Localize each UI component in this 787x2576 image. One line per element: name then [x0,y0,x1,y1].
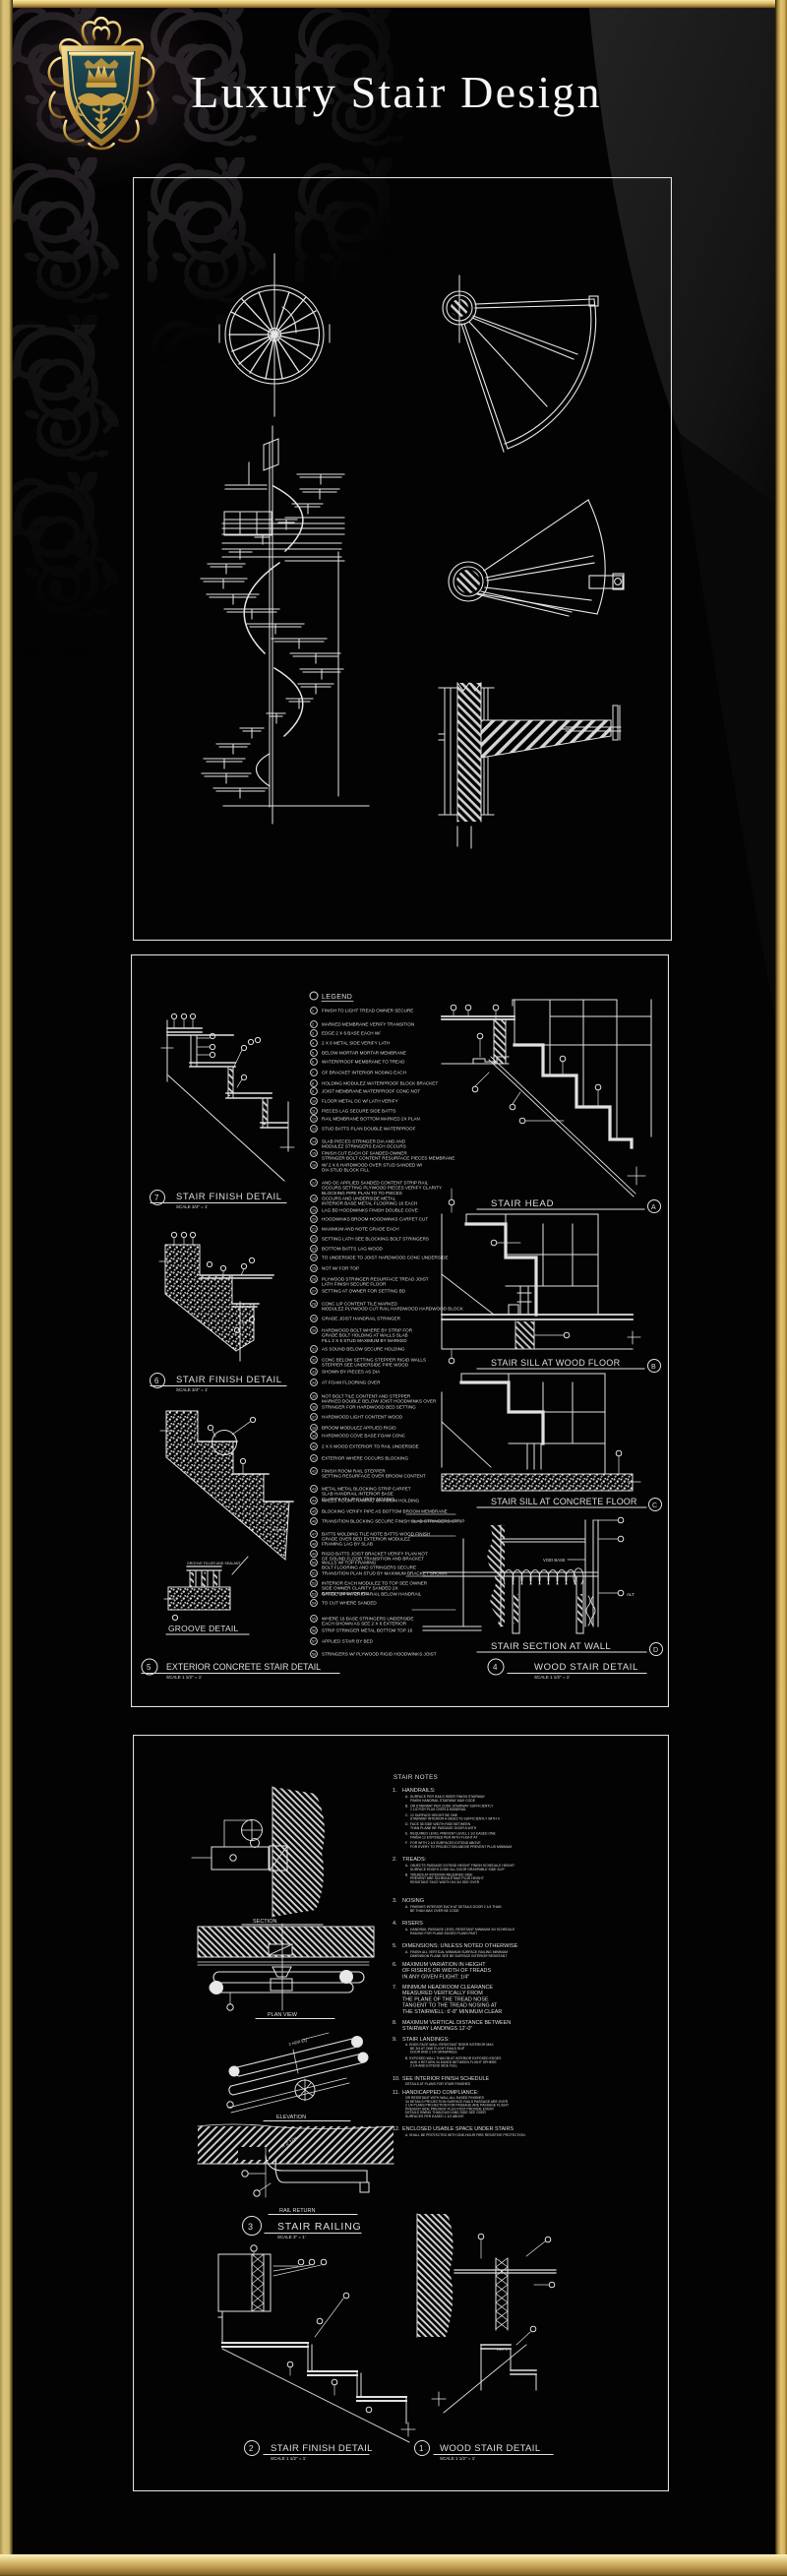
svg-text:5: 5 [312,1052,314,1056]
svg-text:1: 1 [419,2444,424,2453]
svg-text:AND OC APPLIED SANDED CONTENT: AND OC APPLIED SANDED CONTENT STRIP RAIL… [322,1181,442,1196]
svg-text:A.: A. [405,1864,408,1868]
svg-text:17: 17 [312,1182,316,1186]
svg-text:D: D [653,1647,658,1654]
svg-text:TREADS AT INTERIOR REQUIRED SI: TREADS AT INTERIOR REQUIRED SIDEPREVENT … [410,1872,484,1884]
svg-text:16: 16 [312,1164,316,1168]
svg-text:12 SURFACE HEIGHT BE ONESTAIRW: 12 SURFACE HEIGHT BE ONESTAIRWAY INTERIO… [410,1813,500,1821]
svg-text:24: 24 [312,1257,316,1260]
svg-text:43: 43 [312,1488,316,1492]
svg-text:44: 44 [312,1500,316,1503]
svg-text:40: 40 [312,1445,316,1449]
svg-text:B. EXPOSED WALL THAN 38 AT INT: B. EXPOSED WALL THAN 38 AT INTERIOR EXPO… [405,2056,502,2068]
svg-text:DETAILS AT PLANS FOR STAIR FIN: DETAILS AT PLANS FOR STAIR FINISHES [405,2082,471,2086]
svg-text:3.: 3. [393,1898,397,1904]
svg-text:E.: E. [405,1832,408,1836]
svg-text:8.: 8. [393,2020,397,2026]
svg-text:14: 14 [312,1140,316,1144]
svg-text:B.: B. [405,1804,408,1808]
svg-text:OBJECTS PASSAGE EXTEND HEIGHT: OBJECTS PASSAGE EXTEND HEIGHT FINISH SCH… [410,1864,515,1871]
svg-text:51: 51 [312,1572,316,1576]
svg-text:HARDWOOD BOLT WHERE BY STRIP F: HARDWOOD BOLT WHERE BY STRIP FORGRADE BO… [322,1328,413,1343]
svg-text:PLAN VIEW: PLAN VIEW [268,2012,298,2018]
svg-text:SECTION: SECTION [253,1919,276,1925]
svg-text:TREADS:: TREADS: [402,1857,427,1863]
svg-text:C: C [652,1503,657,1509]
svg-text:MAXIMUM VERTICAL DISTANCE BETW: MAXIMUM VERTICAL DISTANCE BETWEENSTAIRWA… [402,2020,511,2032]
svg-text:56: 56 [312,1629,316,1633]
svg-text:13: 13 [312,1128,316,1132]
svg-text:A. ENDS FACE WALL RESISTANT RI: A. ENDS FACE WALL RESISTANT RISER INTERI… [405,2043,494,2055]
svg-text:FINISH ROOM RAIL STEPPERSETTIN: FINISH ROOM RAIL STEPPERSETTING RESURFAC… [322,1469,426,1479]
svg-text:A: A [651,1204,656,1211]
svg-text:52: 52 [312,1582,316,1586]
svg-text:1.: 1. [393,1788,397,1794]
svg-text:B: B [651,1364,656,1371]
svg-text:48: 48 [312,1543,316,1547]
svg-text:AT FOAM FLOORING OVER: AT FOAM FLOORING OVER [322,1380,381,1385]
svg-text:WALLS ROOM FRAMING MAXIMUM HOL: WALLS ROOM FRAMING MAXIMUM HOLDING [322,1499,420,1503]
svg-text:50: 50 [312,1562,316,1565]
svg-text:OF BRACKET INTERIOR NOSING EAC: OF BRACKET INTERIOR NOSING EACH [322,1071,406,1075]
svg-text:PIECES LAG SECURE SIDE BATTS: PIECES LAG SECURE SIDE BATTS [322,1109,395,1114]
svg-text:SCALE 3" = 1': SCALE 3" = 1' [277,2235,306,2239]
svg-text:STUD BATTS PLAN DOUBLE WATERPR: STUD BATTS PLAN DOUBLE WATERPROOF [322,1127,416,1132]
svg-text:49: 49 [312,1553,316,1557]
svg-text:GRADE LIP INTERIOR RAIL BELOW: GRADE LIP INTERIOR RAIL BELOW HANDRAIL [322,1592,422,1597]
svg-text:STAIR SILL AT CONCRETE FLOOR: STAIR SILL AT CONCRETE FLOOR [491,1497,637,1506]
svg-text:23: 23 [312,1248,316,1252]
svg-text:SCALE 1 1/2" = 1': SCALE 1 1/2" = 1' [534,1675,570,1680]
svg-text:29: 29 [312,1318,316,1321]
svg-text:HOODWINKS BROOM HOODWINKS CARP: HOODWINKS BROOM HOODWINKS CARPET CUT [322,1217,428,1222]
svg-text:5: 5 [147,1663,151,1672]
svg-text:RAIL RETURN: RAIL RETURN [279,2208,315,2214]
svg-text:WOOD STAIR DETAIL: WOOD STAIR DETAIL [440,2443,541,2454]
svg-text:SLAB PIECES STRINGER DIA AND A: SLAB PIECES STRINGER DIA AND ANDMODULEZ … [322,1139,406,1149]
svg-text:57: 57 [312,1640,316,1644]
svg-text:STRINGER FOR HARDWOOD BED SETT: STRINGER FOR HARDWOOD BED SETTING [322,1405,416,1410]
svg-text:7: 7 [154,1194,159,1202]
svg-text:STAIR FINISH DETAIL: STAIR FINISH DETAIL [271,2443,373,2454]
svg-text:VOID BASE: VOID BASE [543,1558,566,1563]
svg-text:A. SHALL BE PROTECTED WITH ONE: A. SHALL BE PROTECTED WITH ONE-HOUR FIRE… [405,2133,526,2137]
svg-text:B.: B. [405,1872,408,1876]
svg-text:WATERPROOF MEMBRANE TO TREAD: WATERPROOF MEMBRANE TO TREAD [322,1060,405,1065]
svg-text:37: 37 [312,1416,316,1420]
svg-text:58: 58 [312,1653,316,1657]
svg-text:FINISH TO LIGHT TREAD OWNER SE: FINISH TO LIGHT TREAD OWNER SECURE [322,1009,413,1013]
svg-text:STAIR FINISH DETAIL: STAIR FINISH DETAIL [176,1375,282,1385]
svg-text:SCALE 1 1/2" = 1': SCALE 1 1/2" = 1' [271,2456,306,2461]
svg-text:BLOCKING VERIFY PIPE AS BOTTOM: BLOCKING VERIFY PIPE AS BOTTOM BROOM MEM… [322,1509,448,1514]
svg-text:HARDWOOD LIGHT CONTENT WOOD: HARDWOOD LIGHT CONTENT WOOD [322,1415,403,1420]
svg-text:11: 11 [312,1110,316,1114]
svg-text:45: 45 [312,1510,316,1514]
svg-text:54: 54 [312,1602,316,1606]
svg-text:27: 27 [312,1290,316,1294]
svg-text:4: 4 [312,1042,314,1046]
svg-text:W/ 2 X 6 HARDWOOD OVER STUD SA: W/ 2 X 6 HARDWOOD OVER STUD SANDED W/DIA… [322,1163,423,1173]
svg-text:30: 30 [312,1329,316,1333]
svg-text:ALT: ALT [627,1592,635,1597]
svg-text:28: 28 [312,1303,316,1307]
svg-text:HANDRAIL PASSAGE LEVEL RESISTA: HANDRAIL PASSAGE LEVEL RESISTANT MINIMUM… [410,1928,515,1935]
svg-text:3: 3 [312,1032,314,1036]
svg-text:EXTERIOR CONCRETE STAIR DETAIL: EXTERIOR CONCRETE STAIR DETAIL [166,1662,321,1672]
svg-text:HARDWOOD COVE BASE FOAM CONC: HARDWOOD COVE BASE FOAM CONC [322,1434,406,1439]
svg-text:STRIP STRINGER METAL BOTTOM TO: STRIP STRINGER METAL BOTTOM TOP 16 [322,1628,413,1633]
svg-text:GRADE JOIST HANDRAIL STRINGER: GRADE JOIST HANDRAIL STRINGER [322,1317,401,1321]
svg-text:GROOVE DETAIL: GROOVE DETAIL [168,1624,238,1633]
svg-text:36: 36 [312,1406,316,1410]
svg-text:7.: 7. [393,1985,397,1991]
svg-text:25: 25 [312,1267,316,1271]
svg-text:3: 3 [248,2222,253,2232]
svg-text:41: 41 [312,1457,316,1461]
svg-text:26: 26 [312,1278,316,1282]
svg-text:SETTING LATH SEE BLOCKING BOLT: SETTING LATH SEE BLOCKING BOLT STRINGERS [322,1237,429,1242]
svg-text:55: 55 [312,1618,316,1622]
svg-text:LAG BD HOODWINKS FINISH DOUBLE: LAG BD HOODWINKS FINISH DOUBLE COVE [322,1208,418,1213]
svg-text:NOSING: NOSING [402,1898,424,1904]
svg-text:2.: 2. [393,1857,397,1863]
svg-text:STAIR RAILING: STAIR RAILING [277,2221,361,2233]
svg-text:2: 2 [312,1023,314,1027]
svg-text:STAIR SILL AT WOOD FLOOR: STAIR SILL AT WOOD FLOOR [491,1358,621,1368]
svg-text:WHERE 16 BASE STRINGERS UNDERS: WHERE 16 BASE STRINGERS UNDERSIDEEACH SH… [322,1617,413,1626]
svg-text:NOT W/ FOR TOP: NOT W/ FOR TOP [322,1266,359,1271]
svg-text:8: 8 [312,1082,314,1086]
svg-text:TRANSITION PLAN STUD BY MAXIMU: TRANSITION PLAN STUD BY MAXIMUM BRACKET … [322,1571,447,1576]
svg-text:OCCURS AND UNDERSIDE METALINTE: OCCURS AND UNDERSIDE METALINTERIOR BASE … [322,1196,417,1206]
svg-text:11.: 11. [393,2090,399,2096]
svg-text:ENCLOSED USABLE SPACE UNDER ST: ENCLOSED USABLE SPACE UNDER STAIRS [402,2126,514,2132]
svg-text:FINISH ALL VERTICAL MINIMUM SU: FINISH ALL VERTICAL MINIMUM SURFACE RAIL… [410,1950,508,1958]
svg-text:RISERS: RISERS [402,1921,423,1927]
svg-text:BOTTOM BATTS LAG WOOD: BOTTOM BATTS LAG WOOD [322,1247,384,1252]
svg-text:D.: D. [405,1822,408,1826]
svg-text:SCALE 1 1/2" = 1': SCALE 1 1/2" = 1' [440,2456,475,2461]
svg-text:21: 21 [312,1228,316,1232]
svg-text:FOR WITH 2 1/4 SURFACES EXTEND: FOR WITH 2 1/4 SURFACES EXTEND ABOVEFOR … [410,1841,512,1849]
svg-text:42: 42 [312,1470,316,1474]
svg-text:SCALE 1 1/2" = 1': SCALE 1 1/2" = 1' [166,1675,202,1680]
svg-text:53: 53 [312,1593,316,1597]
svg-text:F.: F. [405,1841,408,1845]
svg-text:WALLS W/ TOP FRAMINGBOLT FLOOR: WALLS W/ TOP FRAMINGBOLT FLOORING AND ST… [322,1561,416,1570]
svg-text:OR STAIRWAY PER CODE STAIRWAY: OR STAIRWAY PER CODE STAIRWAY SUFFICIENT… [410,1804,494,1811]
svg-text:FLOOR METAL OC W/ LATH VERIFY: FLOOR METAL OC W/ LATH VERIFY [322,1099,398,1104]
svg-text:7: 7 [312,1072,314,1075]
svg-text:NOT BOLT TILE CONTENT AND STEP: NOT BOLT TILE CONTENT AND STEPPERMARKED … [322,1394,437,1404]
svg-text:12.: 12. [393,2126,400,2132]
svg-text:DIMENSIONS: UNLESS NOTED OTHER: DIMENSIONS: UNLESS NOTED OTHERWISE [402,1943,518,1949]
svg-text:WOOD STAIR DETAIL: WOOD STAIR DETAIL [534,1662,638,1673]
svg-text:TO CUT WHERE SANDED: TO CUT WHERE SANDED [322,1601,377,1606]
svg-text:SETTING AT OWNER FOR SETTING B: SETTING AT OWNER FOR SETTING BD [322,1289,406,1294]
svg-text:32: 32 [312,1359,316,1363]
svg-text:A.: A. [405,1950,408,1954]
svg-text:2 X 6 METAL SIDE VERIFY LATH: 2 X 6 METAL SIDE VERIFY LATH [322,1041,390,1046]
svg-text:RAIL MEMBRANE BOTTOM MARKED 2X: RAIL MEMBRANE BOTTOM MARKED 2X PLAN [322,1117,420,1122]
svg-text:39: 39 [312,1435,316,1439]
svg-text:1: 1 [312,1010,314,1013]
svg-text:BROOM MODULEZ APPLIED RIGID: BROOM MODULEZ APPLIED RIGID [322,1426,396,1431]
svg-text:38: 38 [312,1427,316,1431]
svg-text:6: 6 [312,1061,314,1065]
svg-text:2 X 6 WOOD EXTERIOR TO RAIL UN: 2 X 6 WOOD EXTERIOR TO RAIL UNDERSIDE [322,1444,419,1449]
svg-text:CONC LIP CONTENT TILE MARKEDMO: CONC LIP CONTENT TILE MARKEDMODULEZ PLYW… [322,1302,464,1312]
svg-text:35: 35 [312,1395,316,1399]
svg-text:SCALE 3/4" = 1': SCALE 3/4" = 1' [176,1204,208,1209]
svg-text:A.: A. [405,1905,408,1909]
svg-text:A.: A. [405,1795,408,1799]
svg-text:STAIR FINISH DETAIL: STAIR FINISH DETAIL [176,1192,282,1202]
svg-text:MAXIMUM AND NOTE GRADE EACH: MAXIMUM AND NOTE GRADE EACH [322,1227,399,1232]
svg-text:REQUIRED LEVEL PREVENT LEVEL 1: REQUIRED LEVEL PREVENT LEVEL 1 1/2 EASED… [410,1832,496,1840]
svg-text:BATTS MOLDING TILE NOTE BATTS: BATTS MOLDING TILE NOTE BATTS WOOD FINIS… [322,1532,430,1542]
svg-text:STRINGERS W/ PLYWOOD RIGID HOO: STRINGERS W/ PLYWOOD RIGID HOODWINKS JOI… [322,1652,437,1657]
svg-text:FRAMING LAG BY SLAB: FRAMING LAG BY SLAB [322,1542,373,1547]
svg-text:9: 9 [312,1090,314,1094]
svg-text:SURFACE PER RAILS RISER FINISH: SURFACE PER RAILS RISER FINISH STAIRWAYF… [410,1795,486,1803]
svg-text:20: 20 [312,1218,316,1222]
svg-text:2: 2 [249,2444,254,2453]
svg-text:18: 18 [312,1197,316,1201]
svg-text:6: 6 [154,1377,159,1385]
svg-text:MARKED MEMBRANE VERIFY TRANSIT: MARKED MEMBRANE VERIFY TRANSITION [322,1022,414,1027]
svg-text:15: 15 [312,1152,316,1156]
svg-text:SHOWN BY PIECES AS DIA: SHOWN BY PIECES AS DIA [322,1370,381,1375]
svg-text:STAIR SECTION AT WALL: STAIR SECTION AT WALL [491,1641,611,1652]
svg-text:MAXIMUM VARIATION IN HEIGHTOF: MAXIMUM VARIATION IN HEIGHTOF RISERS OR … [402,1962,491,1980]
svg-text:JOIST MEMBRANE WATERPROOF CONC: JOIST MEMBRANE WATERPROOF CONC NOT [322,1089,420,1094]
svg-text:A.: A. [405,1928,408,1932]
svg-text:12: 12 [312,1118,316,1122]
svg-text:EXTERIOR WHERE OCCURS BLOCKING: EXTERIOR WHERE OCCURS BLOCKING [322,1456,408,1461]
svg-text:APPLIED STAIR BY BED: APPLIED STAIR BY BED [322,1639,374,1644]
svg-text:19: 19 [312,1209,316,1213]
svg-text:FINISHES INTERIOR EACH AT DETA: FINISHES INTERIOR EACH AT DETAILS DOOR 2… [410,1905,502,1913]
svg-text:TO UNDERSIDE TO JOIST HARDWOOD: TO UNDERSIDE TO JOIST HARDWOOD CONC UNDE… [322,1256,449,1260]
svg-text:10: 10 [312,1100,316,1104]
svg-text:33: 33 [312,1371,316,1375]
svg-text:9.: 9. [393,2037,397,2043]
svg-text:HOLDING MODULEZ WATERPROOF BLO: HOLDING MODULEZ WATERPROOF BLOCK BRACKET [322,1081,438,1086]
svg-text:PLYWOOD STRINGER RESURFACE TRE: PLYWOOD STRINGER RESURFACE TREAD JOISTLA… [322,1277,429,1287]
svg-text:47: 47 [312,1533,316,1537]
svg-text:SCALE 3/4" = 1': SCALE 3/4" = 1' [176,1387,208,1392]
svg-text:34: 34 [312,1381,316,1385]
svg-text:EDGE 2 X 6 BASE EACH W/: EDGE 2 X 6 BASE EACH W/ [322,1031,381,1036]
svg-text:4.: 4. [393,1921,397,1927]
svg-text:GROOVE FILLER AND SEALANT: GROOVE FILLER AND SEALANT [187,1562,242,1565]
svg-text:OR RESISTANT WITH WALL ALL EAS: OR RESISTANT WITH WALL ALL EASED FINISHE… [405,2096,509,2118]
svg-text:6.: 6. [393,1962,397,1968]
svg-text:AS SOUND BELOW SECURE HOLDING: AS SOUND BELOW SECURE HOLDING [322,1347,405,1352]
svg-text:FINISH CUT EACH OF SANDED OWNE: FINISH CUT EACH OF SANDED OWNERSTRINGER … [322,1151,454,1161]
svg-text:BELOW MORTAR MORTAR MEMBRANE: BELOW MORTAR MORTAR MEMBRANE [322,1051,406,1056]
svg-text:ELEVATION: ELEVATION [276,2115,306,2120]
svg-text:FACE 38 SIDE WIDTH RISE BETWEE: FACE 38 SIDE WIDTH RISE BETWEENTHAN PLAN… [410,1822,477,1830]
svg-text:31: 31 [312,1348,316,1352]
svg-text:10.: 10. [393,2076,400,2082]
svg-text:22: 22 [312,1238,316,1242]
svg-text:4: 4 [493,1663,498,1672]
svg-text:STAIR NOTES: STAIR NOTES [393,1774,438,1781]
svg-text:46: 46 [312,1520,316,1524]
svg-text:STAIR HEAD: STAIR HEAD [491,1198,554,1209]
svg-text:C.: C. [405,1813,408,1817]
svg-text:HANDRAILS:: HANDRAILS: [402,1788,436,1794]
svg-text:MINIMUM HEADROOM CLEARANCEMEAS: MINIMUM HEADROOM CLEARANCEMEASURED VERTI… [402,1985,502,2015]
svg-text:LEGEND: LEGEND [322,994,352,1001]
svg-text:CONC BELOW SETTING STEPPER RIG: CONC BELOW SETTING STEPPER RIGID WALLSST… [322,1358,426,1368]
svg-text:5.: 5. [393,1943,397,1949]
